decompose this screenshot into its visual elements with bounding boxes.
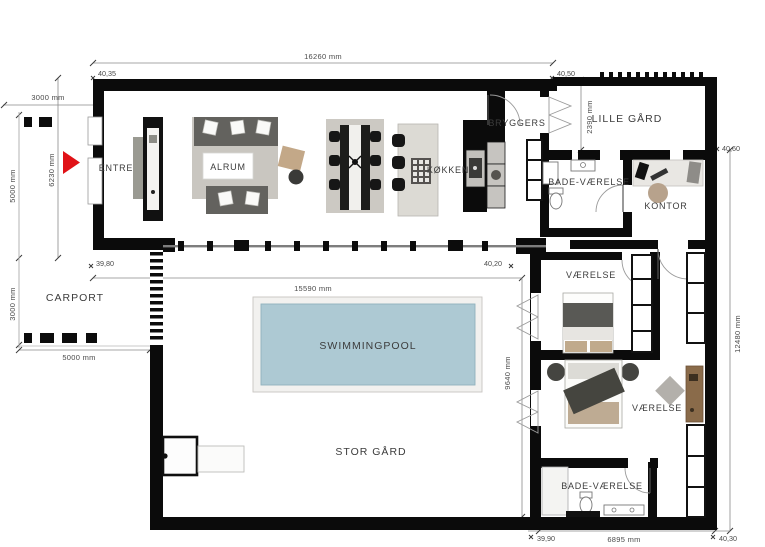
vaerelse-bottom-accessories bbox=[655, 366, 703, 422]
dim-carport-top: 3000 mm bbox=[31, 93, 64, 102]
wheel-stops bbox=[24, 117, 97, 343]
wall-kontor-bottom-a bbox=[570, 240, 658, 249]
wall-main-bottom-left bbox=[93, 238, 163, 250]
label-vaerelse-bottom: VÆRELSE bbox=[632, 403, 682, 413]
courtyard-shower-structure bbox=[162, 437, 244, 475]
floor-plan-drawing: 16260 mm 3000 mm 5000 mm 3000 mm 6230 mm… bbox=[0, 0, 765, 547]
label-bad-bottom: BADE-VÆRELSE bbox=[561, 481, 643, 491]
dining-set bbox=[326, 119, 384, 213]
wall-bottom bbox=[150, 517, 717, 530]
wall-hatch-top bbox=[600, 72, 703, 77]
label-carport: CARPORT bbox=[46, 292, 104, 304]
level-mid-left: 39,80 bbox=[96, 259, 114, 268]
bed-vaerelse-top bbox=[563, 293, 613, 353]
kontor-desk bbox=[633, 160, 703, 203]
wall-court-left-solid bbox=[150, 345, 163, 525]
glass-facade bbox=[163, 240, 546, 251]
wall-bryggers-east-a bbox=[540, 85, 549, 97]
label-lille-gaard: LILLE GÅRD bbox=[592, 112, 663, 125]
wall-bryggers-left-upper bbox=[487, 85, 505, 142]
dim-court-height: 9640 mm bbox=[503, 356, 512, 389]
dim-court-width: 15590 mm bbox=[294, 284, 332, 293]
bed-vaerelse-bottom bbox=[547, 360, 639, 428]
dim-bottom-width: 6895 mm bbox=[607, 535, 640, 544]
bryggers-appliances bbox=[487, 140, 542, 208]
label-kontor: KONTOR bbox=[644, 201, 687, 211]
level-top-left: 40,35 bbox=[98, 69, 116, 78]
level-right-upper: 40,60 bbox=[722, 144, 740, 153]
wall-bad-bottom-top-a bbox=[530, 458, 628, 468]
level-mid-right: 40,20 bbox=[484, 259, 502, 268]
wall-right bbox=[705, 77, 717, 530]
label-kokken: KØKKEN bbox=[427, 165, 469, 175]
entre-wardrobe bbox=[133, 117, 163, 221]
label-bad-top: BADE-VÆRELSE bbox=[548, 177, 630, 187]
level-bottom-left: 39,90 bbox=[537, 534, 555, 543]
wall-kontor-bottom-b bbox=[688, 240, 715, 249]
label-entre: ENTRE bbox=[99, 163, 134, 173]
dim-top-width: 16260 mm bbox=[304, 52, 342, 61]
bad-bottom-fixtures bbox=[542, 467, 644, 517]
dim-carport-bottom: 5000 mm bbox=[62, 353, 95, 362]
label-pool: SWIMMINGPOOL bbox=[319, 340, 416, 352]
level-top-right: 40,50 bbox=[557, 69, 575, 78]
wall-corridor bbox=[652, 252, 660, 358]
dim-right-height: 12480 mm bbox=[733, 315, 742, 353]
windows-west bbox=[88, 117, 102, 204]
wall-bad-top-east-b bbox=[623, 212, 632, 228]
dim-left-outer: 5000 mm bbox=[8, 169, 17, 202]
label-bryggers: BRYGGERS bbox=[488, 118, 545, 128]
wall-wing-west bbox=[530, 250, 541, 517]
floor-plan-page: 16260 mm 3000 mm 5000 mm 3000 mm 6230 mm… bbox=[0, 0, 765, 547]
alrum-sofa-set bbox=[192, 117, 305, 214]
wall-lille-gaard-top bbox=[553, 77, 715, 86]
entrance-arrow-icon bbox=[63, 151, 80, 174]
label-vaerelse-top: VÆRELSE bbox=[566, 270, 616, 280]
level-bottom-right: 40,30 bbox=[719, 534, 737, 543]
wall-bad-top-bottom bbox=[540, 228, 632, 237]
carport-area bbox=[19, 112, 150, 348]
wall-court-left-hatched bbox=[150, 250, 163, 345]
dim-left-inner: 6230 mm bbox=[47, 153, 56, 186]
label-stor-gaard: STOR GÅRD bbox=[335, 445, 406, 458]
label-alrum: ALRUM bbox=[210, 162, 246, 172]
wall-bad-bottom-east bbox=[648, 462, 657, 517]
dim-carport-left: 3000 mm bbox=[8, 287, 17, 320]
